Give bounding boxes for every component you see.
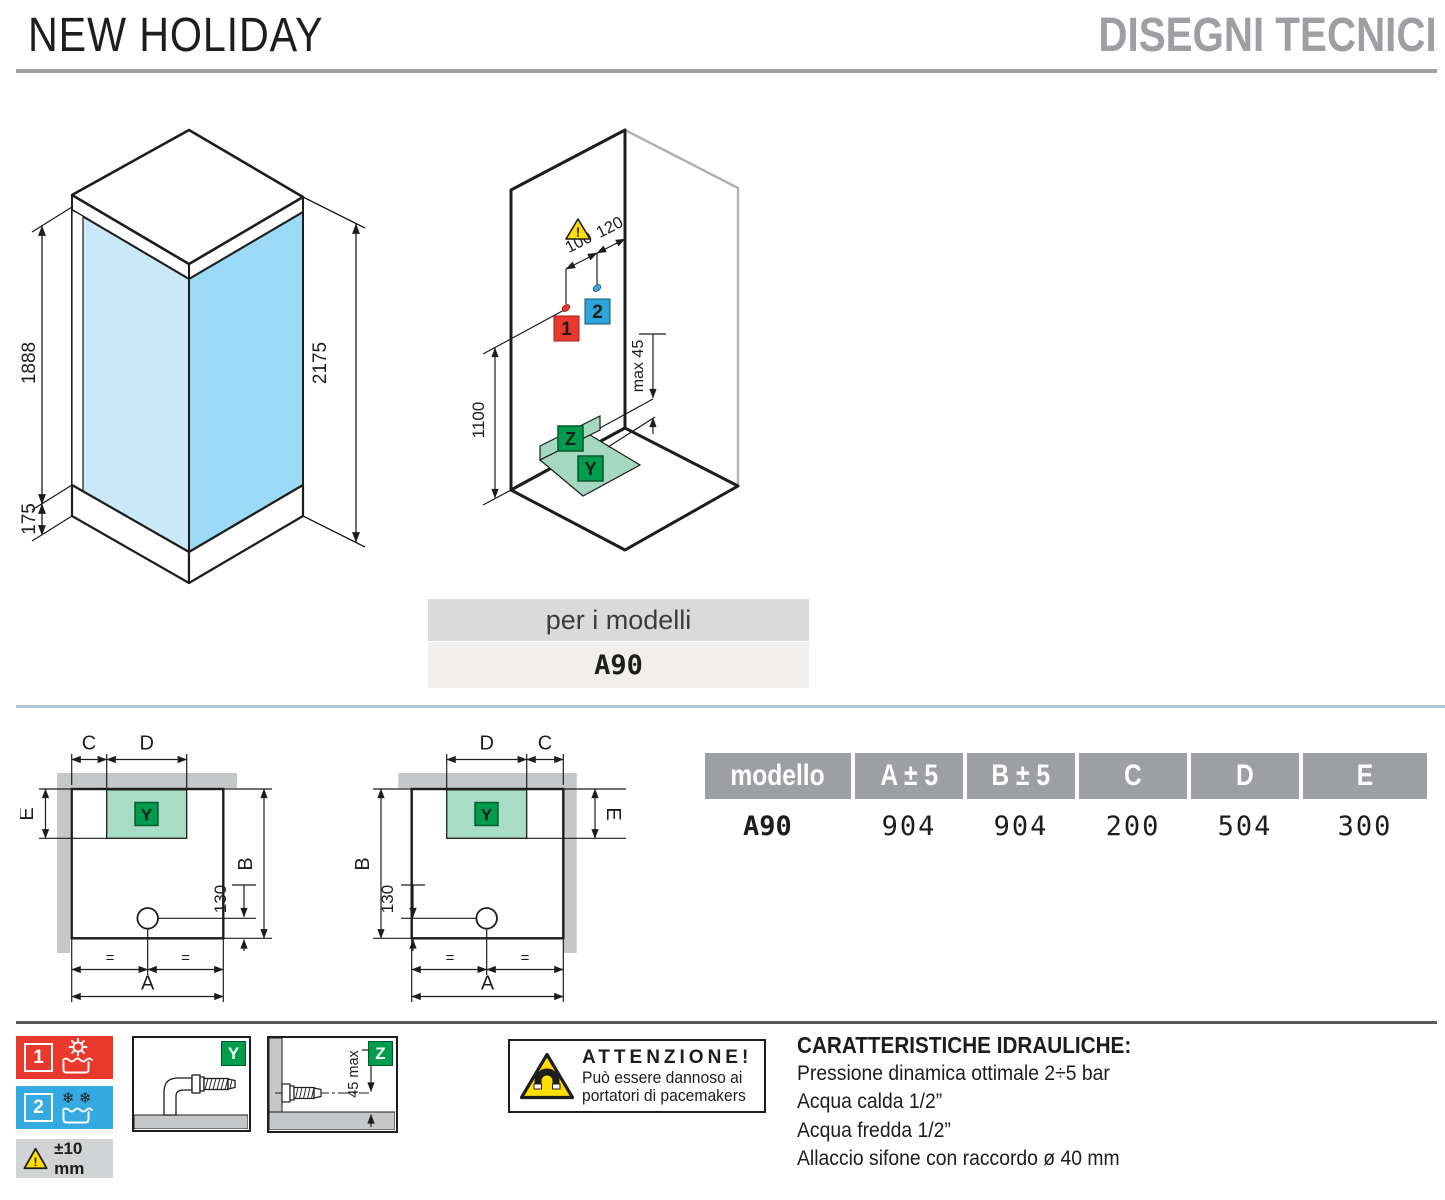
svg-text:!: ! — [34, 1155, 38, 1169]
equal-mark: = — [521, 950, 530, 967]
isometric-installation-drawing: max 45 1100 100 120 1 2 — [440, 98, 780, 598]
wall-drain-badge: Z — [558, 426, 583, 451]
dim-b-label: B — [352, 857, 374, 870]
cell-e: 300 — [1303, 811, 1427, 842]
hydraulics-line: Acqua calda 1/2” — [797, 1087, 1131, 1115]
hot-water-badge: 1 — [554, 316, 579, 341]
hydraulics-line: Allaccio sifone con raccordo ø 40 mm — [797, 1144, 1131, 1172]
wall-drain-dim-label: 45 max — [346, 1049, 362, 1097]
drain-hole — [476, 908, 497, 929]
svg-text:2: 2 — [592, 302, 603, 323]
attention-box: ATTENZIONE! Può essere dannoso ai portat… — [508, 1039, 766, 1113]
table-header-row: modello A ± 5 B ± 5 C D E — [705, 753, 1427, 799]
dim-c-label: C — [538, 733, 552, 755]
snowflakes-and-water-icon: ❄ ❄ — [53, 1088, 109, 1128]
drain-zone-badge: Y — [135, 803, 158, 826]
dim-c-label: C — [82, 733, 96, 755]
dim-e-label: E — [602, 807, 624, 820]
cell-c: 200 — [1079, 811, 1187, 842]
dim-d-label: D — [479, 733, 493, 755]
svg-text:❄: ❄ — [79, 1089, 92, 1107]
cabin-body — [72, 130, 303, 583]
svg-text:Z: Z — [565, 429, 576, 449]
total-height-label: 2175 — [310, 342, 331, 384]
cell-a: 904 — [855, 811, 963, 842]
model-name: A90 — [428, 642, 809, 688]
svg-text:Y: Y — [584, 459, 596, 479]
dim-130-label: 130 — [211, 885, 230, 913]
floor-drain-badge: Y — [578, 456, 603, 481]
dim-e-label: E — [20, 807, 38, 820]
tray-height-label: 175 — [20, 503, 40, 535]
wall-drain-max-label: max 45 — [630, 340, 647, 393]
cold-number-badge: 2 — [24, 1093, 53, 1122]
dim-a-label: A — [141, 973, 155, 995]
attention-line: portatori di pacemakers — [582, 1087, 746, 1105]
wall-top — [57, 773, 237, 788]
wall-right — [563, 773, 576, 953]
wall-drain-label-badge: Z — [368, 1041, 393, 1066]
tolerance-legend: ! ±10 mm — [16, 1139, 113, 1178]
floor-drain-label-badge: Y — [221, 1041, 246, 1066]
table-row: A90 904 904 200 504 300 — [705, 799, 1427, 853]
plan-drawing-left: Y C D E B 130 = = A — [20, 728, 330, 1020]
wall-left — [57, 773, 70, 953]
right-wall — [625, 130, 738, 486]
column-header-d: D — [1191, 753, 1299, 799]
hot-water-legend: 1 — [16, 1036, 113, 1079]
technical-sheet-page: NEW HOLIDAY DISEGNI TECNICI 1888 175 — [0, 0, 1445, 1200]
supply-height-label: 1100 — [469, 402, 488, 439]
svg-text:Y: Y — [481, 806, 493, 825]
cell-d: 504 — [1191, 811, 1299, 842]
section-divider — [16, 705, 1445, 708]
section-title: DISEGNI TECNICI — [1099, 8, 1437, 63]
frame-profile — [72, 210, 83, 491]
dim-130-label: 130 — [378, 885, 397, 913]
hydraulics-block: CARATTERISTICHE IDRAULICHE: Pressione di… — [797, 1032, 1168, 1173]
footer-divider — [16, 1021, 1437, 1024]
column-header-a: A ± 5 — [855, 753, 963, 799]
equal-mark: = — [106, 950, 115, 967]
models-caption: per i modelli — [428, 599, 809, 641]
attention-text: ATTENZIONE! Può essere dannoso ai portat… — [582, 1047, 754, 1105]
attention-title: ATTENZIONE! — [582, 1047, 754, 1069]
hydraulics-title: CARATTERISTICHE IDRAULICHE: — [797, 1032, 1131, 1059]
wall-drain-detail: 45 max Z — [267, 1036, 398, 1133]
models-box: per i modelli A90 — [428, 599, 809, 688]
warning-triangle-icon: ! — [23, 1146, 48, 1171]
wall-top — [398, 773, 576, 788]
drain-hole — [137, 908, 158, 929]
tolerance-value: ±10 mm — [54, 1139, 113, 1179]
column-header-e: E — [1303, 753, 1427, 799]
glass-height-label: 1888 — [20, 342, 40, 384]
cold-water-legend: 2 ❄ ❄ — [16, 1086, 113, 1129]
dimensions-table: modello A ± 5 B ± 5 C D E A90 904 904 20… — [705, 753, 1427, 853]
sun-and-water-icon — [53, 1038, 109, 1078]
magnet-warning-icon — [519, 1051, 575, 1101]
column-header-c: C — [1079, 753, 1187, 799]
cell-b: 904 — [967, 811, 1075, 842]
hydraulics-line: Pressione dinamica ottimale 2÷5 bar — [797, 1059, 1131, 1087]
cold-water-badge: 2 — [585, 299, 610, 324]
hydraulics-line: Acqua fredda 1/2” — [797, 1116, 1131, 1144]
column-header-b: B ± 5 — [967, 753, 1075, 799]
svg-text:1: 1 — [561, 319, 572, 340]
svg-text:!: ! — [576, 225, 580, 240]
product-title: NEW HOLIDAY — [28, 8, 323, 63]
attention-line: Può essere dannoso ai — [582, 1069, 746, 1087]
header-divider — [16, 69, 1437, 73]
svg-text:Y: Y — [141, 806, 153, 825]
hot-number-badge: 1 — [24, 1043, 53, 1072]
svg-text:❄: ❄ — [62, 1089, 75, 1107]
drain-zone-badge: Y — [475, 803, 498, 826]
dim-a-label: A — [481, 973, 495, 995]
dim-b-label: B — [235, 857, 257, 870]
equal-mark: = — [446, 950, 455, 967]
isometric-cabin-drawing: 1888 175 2175 — [20, 105, 390, 610]
column-header-modello: modello — [705, 753, 851, 799]
dim-d-label: D — [139, 733, 153, 755]
equal-mark: = — [181, 950, 190, 967]
floor-drain-detail: Y — [132, 1036, 251, 1132]
plan-drawing-right: Y D C E B 130 = = A — [335, 728, 645, 1020]
cell-model: A90 — [705, 811, 851, 842]
